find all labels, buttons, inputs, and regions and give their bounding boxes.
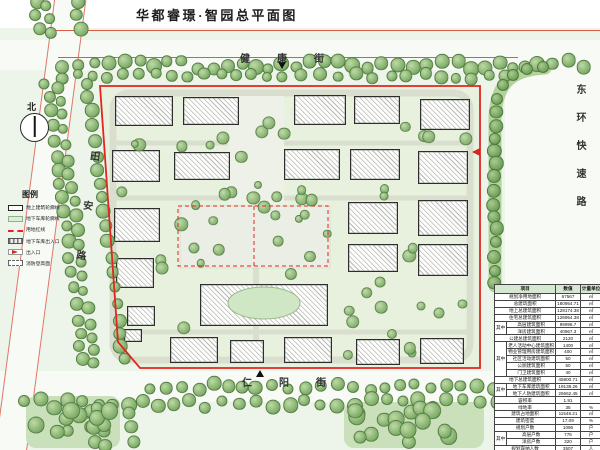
building — [183, 97, 239, 125]
table-unit-cell: ㎡ — [580, 342, 600, 349]
table-item-cell: 老人活动中心建筑面积 — [507, 342, 556, 349]
tree-icon — [160, 382, 173, 395]
tree-icon — [118, 54, 133, 69]
tree-icon — [84, 318, 97, 331]
north-compass-icon — [20, 113, 49, 142]
legend-title: 图例 — [22, 189, 80, 200]
tree-icon — [313, 67, 327, 81]
table-unit-cell: ㎡ — [580, 383, 600, 390]
garage-outline-icon — [8, 216, 23, 222]
tree-icon — [96, 204, 111, 219]
tree-icon — [353, 431, 366, 444]
tree-icon — [217, 132, 230, 145]
tree-icon — [198, 67, 211, 80]
table-row: 社区活动建筑面积50㎡ — [495, 356, 600, 363]
tree-icon — [192, 383, 207, 398]
tree-icon — [375, 56, 389, 70]
street-label-top: 健康街 — [240, 50, 351, 65]
table-row: 建筑密度17.09% — [495, 418, 600, 425]
tree-icon — [333, 71, 344, 82]
table-value-cell: 17.09 — [556, 418, 581, 425]
tree-icon — [254, 181, 262, 189]
table-unit-cell: ㎡ — [580, 356, 600, 363]
building — [124, 329, 142, 342]
table-item-cell: 公建总建筑面积 — [495, 335, 556, 342]
tree-icon — [28, 416, 45, 433]
tree-icon — [85, 103, 100, 118]
tree-icon — [491, 93, 503, 105]
tree-icon — [562, 53, 577, 68]
table-value-cell: 26662.45 — [556, 390, 581, 397]
table-value-cell: 40967.3 — [556, 328, 581, 335]
tree-icon — [191, 200, 201, 210]
tree-icon — [265, 400, 280, 415]
tree-icon — [297, 185, 307, 195]
building — [418, 244, 468, 276]
legend-item-label: 地下车库出入口 — [26, 238, 60, 245]
table-value-cell: 50 — [556, 362, 581, 369]
tree-icon — [136, 394, 150, 408]
tree-icon — [98, 439, 112, 450]
building — [230, 340, 264, 363]
table-item-cell: 门卫建筑面积 — [507, 369, 556, 376]
tree-icon — [521, 63, 533, 75]
table-value-cell: 3507 — [556, 445, 581, 450]
tree-icon — [487, 169, 501, 183]
building — [116, 258, 154, 288]
table-unit-cell: ㎡ — [580, 321, 600, 328]
table-value-cell: 126954.38 — [556, 314, 581, 321]
building — [112, 150, 160, 182]
table-value-cell: 1400 — [556, 342, 581, 349]
indicator-table-body: 规划净用地面积67567㎡总建筑面积180954.71㎡地上总建筑面积12917… — [495, 294, 600, 450]
building — [127, 306, 155, 326]
building — [350, 149, 400, 180]
building — [284, 149, 340, 180]
tree-icon — [156, 262, 169, 275]
table-row: 绿地率35% — [495, 404, 600, 411]
tree-icon — [469, 379, 484, 394]
tree-icon — [74, 21, 89, 36]
table-group-cell: 其中 — [495, 321, 507, 335]
tree-icon — [118, 352, 131, 365]
tree-icon — [209, 216, 219, 226]
table-row: 其中地下车库建筑面积19138.26㎡ — [495, 383, 600, 390]
tree-icon — [437, 424, 452, 439]
legend-item: 地下车库出入口 — [8, 238, 80, 245]
site-plan-drawing: 华都睿璟·智园总平面图 健康街 仁阳街 田安路 东环快速路 北 图例 地上建筑轮… — [0, 0, 600, 450]
legend-item-label: 地上建筑轮廓线 — [26, 204, 60, 211]
tree-icon — [283, 397, 299, 413]
tree-icon — [417, 302, 426, 311]
table-value-cell: 400 — [556, 349, 581, 356]
table-unit-cell: 户 — [580, 424, 600, 431]
tree-icon — [176, 382, 188, 394]
tree-icon — [329, 398, 344, 413]
table-item-cell: 社区活动建筑面积 — [507, 356, 556, 363]
table-unit-cell: ㎡ — [580, 411, 600, 418]
tree-icon — [206, 141, 215, 150]
legend-item: 出入口 — [8, 249, 80, 256]
table-value-cell: 45800.71 — [556, 376, 581, 383]
table-row: 规划净用地面积67567㎡ — [495, 294, 600, 301]
tree-icon — [75, 328, 87, 340]
table-row: 门卫建筑面积40㎡ — [495, 369, 600, 376]
legend-items: 地上建筑轮廓线地下车库轮廓线用地红线地下车库出入口出入口消防登高面 — [8, 204, 80, 267]
tree-icon — [81, 78, 93, 90]
table-row: 公厕建筑面积50㎡ — [495, 362, 600, 369]
tree-icon — [101, 402, 119, 420]
table-value-cell: 89996.7 — [556, 321, 581, 328]
table-unit-cell: 人 — [580, 445, 600, 450]
street-label-bottom: 仁阳街 — [242, 374, 353, 389]
table-item-cell: 地下总建筑面积 — [495, 376, 556, 383]
table-group-cell: 其中 — [495, 383, 507, 397]
tree-icon — [29, 9, 41, 21]
building — [200, 284, 328, 326]
page-title: 华都睿璟·智园总平面图 — [136, 5, 298, 24]
tree-icon — [507, 69, 519, 81]
table-value-cell: 40 — [556, 369, 581, 376]
tree-icon — [230, 70, 242, 82]
table-unit-cell: ㎡ — [580, 314, 600, 321]
building-outline-icon — [8, 205, 23, 211]
tree-icon — [151, 68, 162, 79]
table-row: 地下总建筑面积45800.71㎡ — [495, 376, 600, 383]
tree-icon — [110, 282, 121, 293]
building — [170, 337, 218, 363]
table-unit-cell: ㎡ — [580, 335, 600, 342]
table-group-cell: 其中 — [495, 342, 507, 376]
building — [420, 99, 470, 130]
legend: 图例 地上建筑轮廓线地下车库轮廓线用地红线地下车库出入口出入口消防登高面 — [8, 189, 80, 271]
table-row: 洋房建筑面积40967.3㎡ — [495, 328, 600, 335]
tree-icon — [487, 250, 501, 264]
building — [356, 339, 400, 365]
table-row: 其中老人活动中心建筑面积1400㎡ — [495, 342, 600, 349]
tree-icon — [18, 395, 30, 407]
table-item-cell: 容积率 — [495, 397, 556, 404]
tree-icon — [465, 73, 478, 86]
tree-icon — [305, 194, 318, 207]
table-item-cell: 规划户数 — [495, 424, 556, 431]
table-value-cell: 35 — [556, 404, 581, 411]
tree-icon — [497, 79, 509, 91]
table-value-cell: 11548.21 — [556, 411, 581, 418]
table-value-cell: 1.91 — [556, 397, 581, 404]
entrance-flag-icon — [8, 249, 23, 255]
legend-item: 地下车库轮廓线 — [8, 215, 80, 222]
tree-icon — [387, 329, 397, 339]
table-group-cell: 其中 — [495, 431, 507, 445]
tree-icon — [381, 393, 393, 405]
table-header-cell: 项目 — [495, 285, 556, 294]
table-row: 规划容纳人数3507人 — [495, 445, 600, 450]
tree-icon — [375, 277, 386, 288]
tree-icon — [299, 209, 310, 220]
tree-icon — [386, 71, 397, 82]
tree-icon — [188, 243, 199, 254]
table-item-cell: 公厕建筑面积 — [507, 362, 556, 369]
tree-icon — [315, 400, 326, 411]
table-value-cell: 2120 — [556, 335, 581, 342]
tree-icon — [344, 305, 355, 316]
table-value-cell: 180954.71 — [556, 300, 581, 307]
tree-icon — [394, 379, 406, 391]
building — [115, 96, 173, 126]
table-unit-cell — [580, 397, 600, 404]
table-value-cell: 776 — [556, 431, 581, 438]
tree-icon — [458, 299, 467, 308]
table-unit-cell: ㎡ — [580, 369, 600, 376]
legend-item-label: 地下车库轮廓线 — [26, 215, 60, 222]
building — [418, 200, 468, 236]
tree-icon — [304, 251, 316, 263]
tree-icon — [439, 392, 453, 406]
tree-icon — [298, 394, 310, 406]
table-row: 总建筑面积180954.71㎡ — [495, 300, 600, 307]
tree-icon — [44, 13, 56, 25]
table-unit-cell: ㎡ — [580, 376, 600, 383]
building — [294, 95, 346, 125]
fire-lane-icon — [8, 260, 23, 266]
tree-icon — [375, 301, 388, 314]
tree-icon — [364, 391, 380, 407]
tree-icon — [366, 73, 378, 85]
table-value-cell: 1096 — [556, 424, 581, 431]
legend-item-label: 消防登高面 — [26, 260, 50, 267]
indicator-table-header: 项目数值计量单位 — [495, 285, 600, 294]
legend-item: 地上建筑轮廓线 — [8, 204, 80, 211]
tree-icon — [207, 376, 222, 391]
table-row: 容积率1.91 — [495, 397, 600, 404]
table-value-cell: 19138.26 — [556, 383, 581, 390]
table-unit-cell: ㎡ — [580, 294, 600, 301]
building — [348, 244, 398, 272]
tree-icon — [85, 118, 99, 132]
table-row: 建筑占地面积11548.21㎡ — [495, 411, 600, 418]
table-unit-cell: ㎡ — [580, 307, 600, 314]
tree-icon — [113, 314, 127, 328]
table-value-cell: 67567 — [556, 294, 581, 301]
table-item-cell: 洋房建筑面积 — [507, 328, 556, 335]
tree-icon — [273, 236, 284, 247]
tree-icon — [134, 54, 147, 67]
legend-item-label: 用地红线 — [26, 226, 45, 233]
tree-icon — [474, 396, 487, 409]
table-unit-cell: ㎡ — [580, 390, 600, 397]
table-row: 其中高层户数776户 — [495, 431, 600, 438]
tree-icon — [106, 266, 119, 279]
tree-icon — [112, 298, 124, 310]
legend-item-label: 出入口 — [26, 249, 40, 256]
building — [418, 151, 468, 184]
tree-icon — [86, 332, 97, 343]
street-label-right: 东环快速路 — [572, 84, 587, 224]
building — [354, 96, 400, 124]
table-item-cell: 高层户数 — [507, 431, 556, 438]
tree-icon — [62, 168, 75, 181]
tree-icon — [346, 315, 360, 329]
tree-icon — [537, 61, 549, 73]
table-unit-cell: ㎡ — [580, 362, 600, 369]
table-item-cell: 建筑占地面积 — [495, 411, 556, 418]
table-unit-cell: % — [580, 404, 600, 411]
building — [174, 152, 230, 180]
tree-icon — [182, 393, 196, 407]
tree-icon — [105, 251, 118, 264]
tree-icon — [88, 134, 102, 148]
east-entrance-flag-icon — [472, 148, 480, 156]
table-unit-cell: 户 — [580, 438, 600, 445]
table-item-cell: 规划净用地面积 — [495, 294, 556, 301]
table-row: 住宅总建筑面积126954.38㎡ — [495, 314, 600, 321]
red-line-icon — [8, 230, 23, 232]
table-item-cell: 高层建筑面积 — [507, 321, 556, 328]
building — [420, 338, 464, 364]
table-row: 地下人防建筑面积26662.45㎡ — [495, 390, 600, 397]
table-unit-cell: 户 — [580, 431, 600, 438]
table-unit-cell: ㎡ — [580, 349, 600, 356]
table-item-cell: 物业管理用房建筑面积 — [507, 349, 556, 356]
table-row: 洋房户数320户 — [495, 438, 600, 445]
table-row: 物业管理用房建筑面积400㎡ — [495, 349, 600, 356]
table-unit-cell: ㎡ — [580, 328, 600, 335]
tree-icon — [380, 192, 389, 201]
table-item-cell: 地下车库建筑面积 — [507, 383, 556, 390]
tree-icon — [435, 54, 450, 69]
tree-icon — [113, 339, 128, 354]
tree-icon — [250, 395, 263, 408]
building — [284, 337, 332, 363]
tree-icon — [96, 191, 108, 203]
tree-icon — [101, 56, 116, 71]
table-row: 其中高层建筑面积89996.7㎡ — [495, 321, 600, 328]
table-item-cell: 规划容纳人数 — [495, 445, 556, 450]
table-header-cell: 计量单位 — [580, 285, 600, 294]
building — [114, 208, 160, 242]
garage-entrance-icon — [8, 238, 23, 244]
table-value-cell: 129174.38 — [556, 307, 581, 314]
tree-icon — [258, 200, 271, 213]
tree-icon — [125, 420, 139, 434]
table-value-cell: 320 — [556, 438, 581, 445]
compass-needle — [33, 116, 36, 137]
table-unit-cell: % — [580, 418, 600, 425]
tree-icon — [348, 403, 364, 419]
table-row: 公建总建筑面积2120㎡ — [495, 335, 600, 342]
tree-icon — [278, 127, 291, 140]
table-item-cell: 住宅总建筑面积 — [495, 314, 556, 321]
building — [348, 202, 398, 234]
table-item-cell: 地上总建筑面积 — [495, 307, 556, 314]
tree-icon — [433, 308, 444, 319]
table-header-cell: 数值 — [556, 285, 581, 294]
table-item-cell: 建筑密度 — [495, 418, 556, 425]
table-row: 规划户数1096户 — [495, 424, 600, 431]
tree-icon — [62, 402, 80, 420]
table-item-cell: 洋房户数 — [507, 438, 556, 445]
table-row: 地上总建筑面积129174.38㎡ — [495, 307, 600, 314]
indicator-table: 项目数值计量单位 规划净用地面积67567㎡总建筑面积180954.71㎡地上总… — [494, 284, 600, 450]
table-item-cell: 绿地率 — [495, 404, 556, 411]
table-unit-cell: ㎡ — [580, 300, 600, 307]
legend-item: 用地红线 — [8, 226, 80, 233]
tree-icon — [493, 55, 508, 70]
tree-icon — [219, 188, 232, 201]
north-label: 北 — [27, 100, 36, 113]
table-value-cell: 50 — [556, 356, 581, 363]
tree-icon — [48, 135, 61, 148]
tree-icon — [576, 60, 591, 75]
table-item-cell: 地下人防建筑面积 — [507, 390, 556, 397]
table-item-cell: 总建筑面积 — [495, 300, 556, 307]
legend-item: 消防登高面 — [8, 260, 80, 267]
